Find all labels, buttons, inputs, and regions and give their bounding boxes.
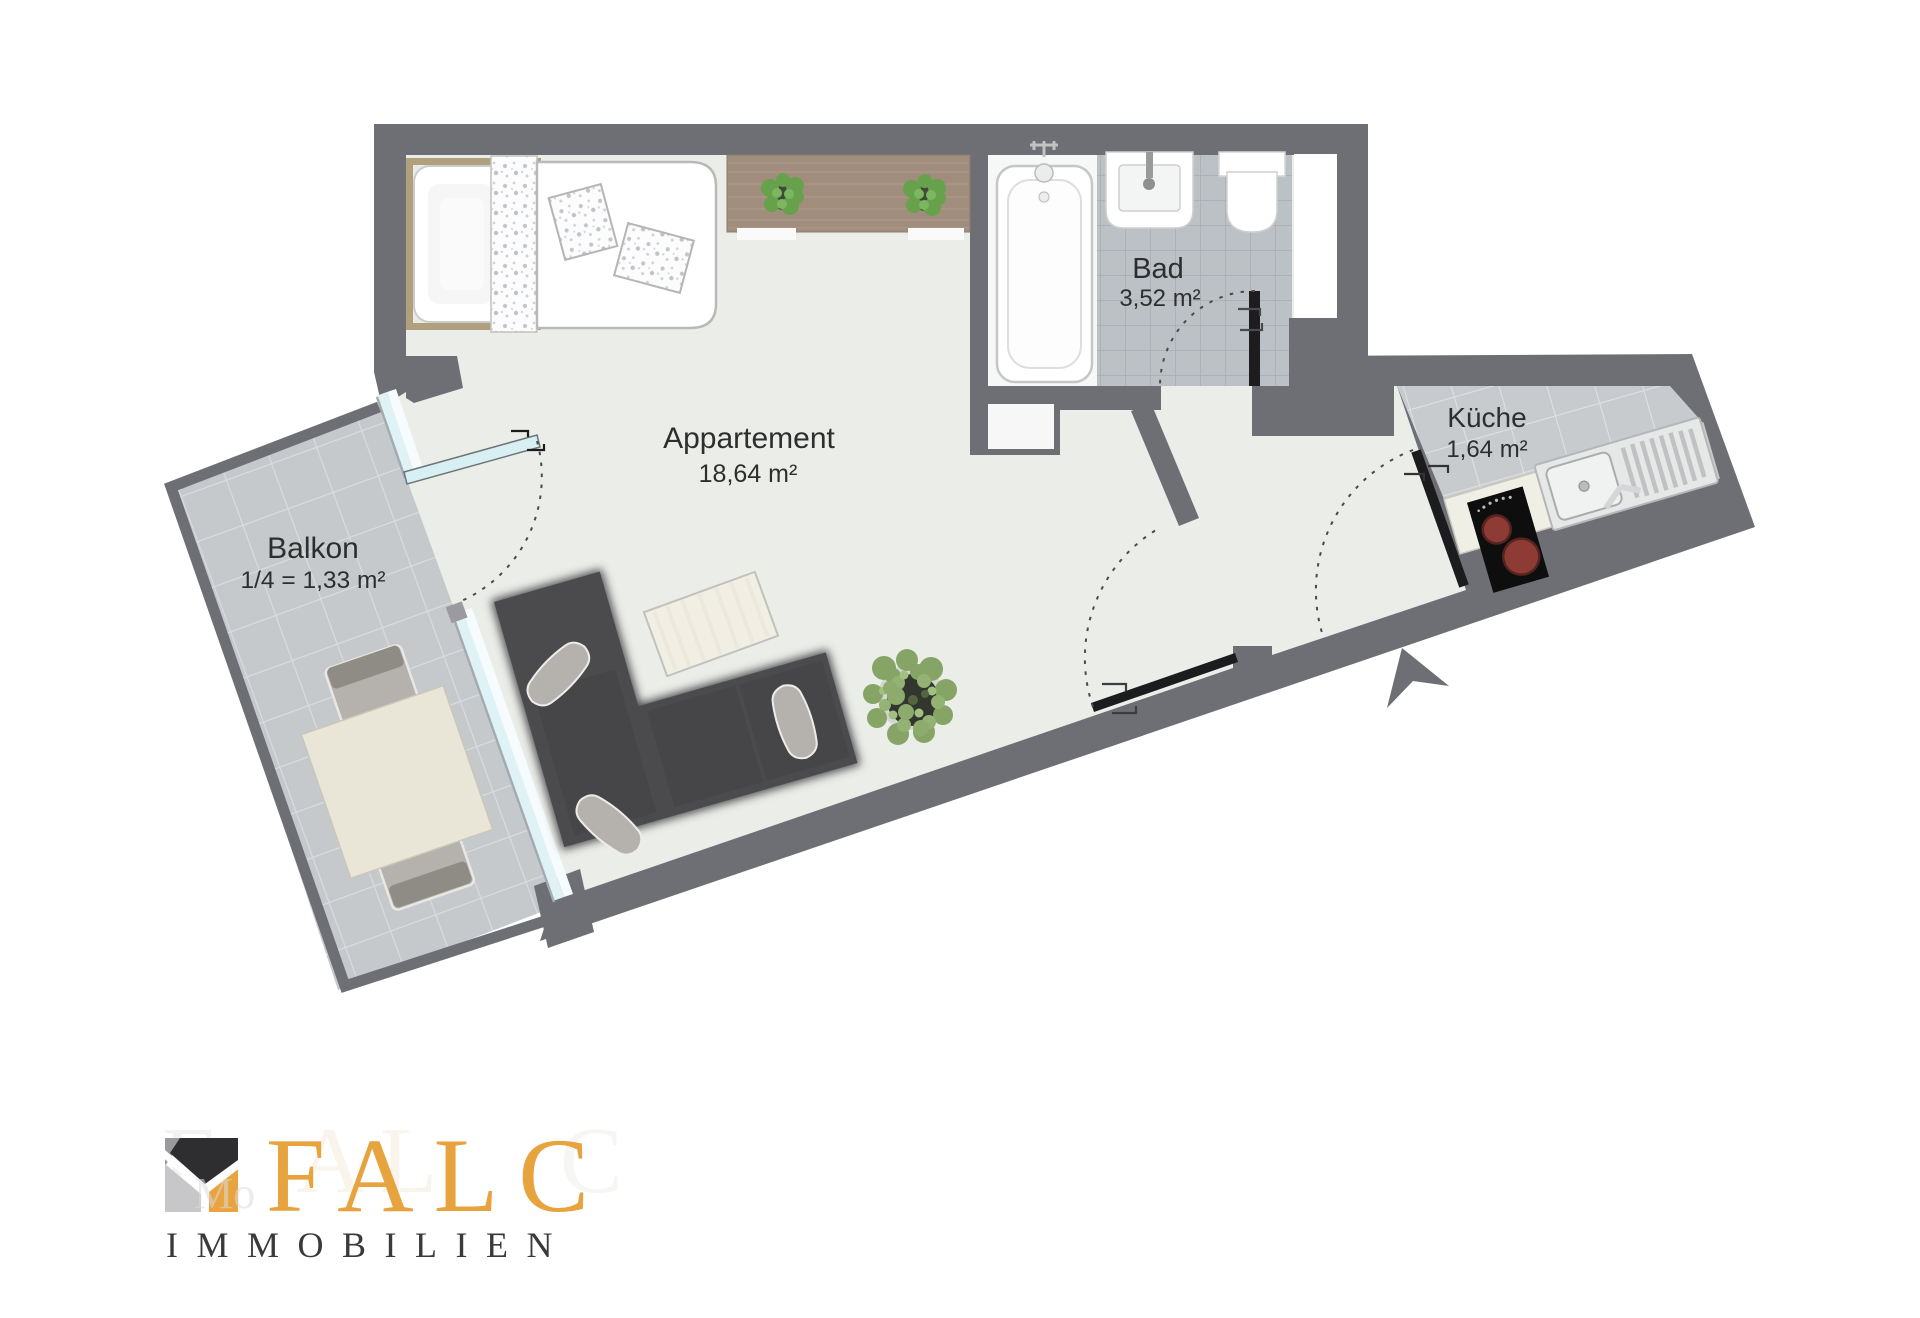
svg-text:1/4 = 1,33 m²: 1/4 = 1,33 m²: [240, 567, 385, 594]
svg-text:3,52 m²: 3,52 m²: [1119, 285, 1200, 312]
svg-text:Balkon: Balkon: [267, 532, 359, 565]
svg-text:Appartement: Appartement: [663, 422, 835, 455]
svg-text:IMMOBILIEN: IMMOBILIEN: [166, 1225, 571, 1265]
svg-text:Bad: Bad: [1132, 253, 1184, 285]
svg-text:Mo: Mo: [194, 1169, 255, 1218]
svg-text:FALC: FALC: [266, 1117, 609, 1234]
svg-text:Küche: Küche: [1447, 402, 1526, 433]
svg-text:1,64 m²: 1,64 m²: [1446, 436, 1527, 463]
svg-text:18,64 m²: 18,64 m²: [699, 460, 798, 488]
